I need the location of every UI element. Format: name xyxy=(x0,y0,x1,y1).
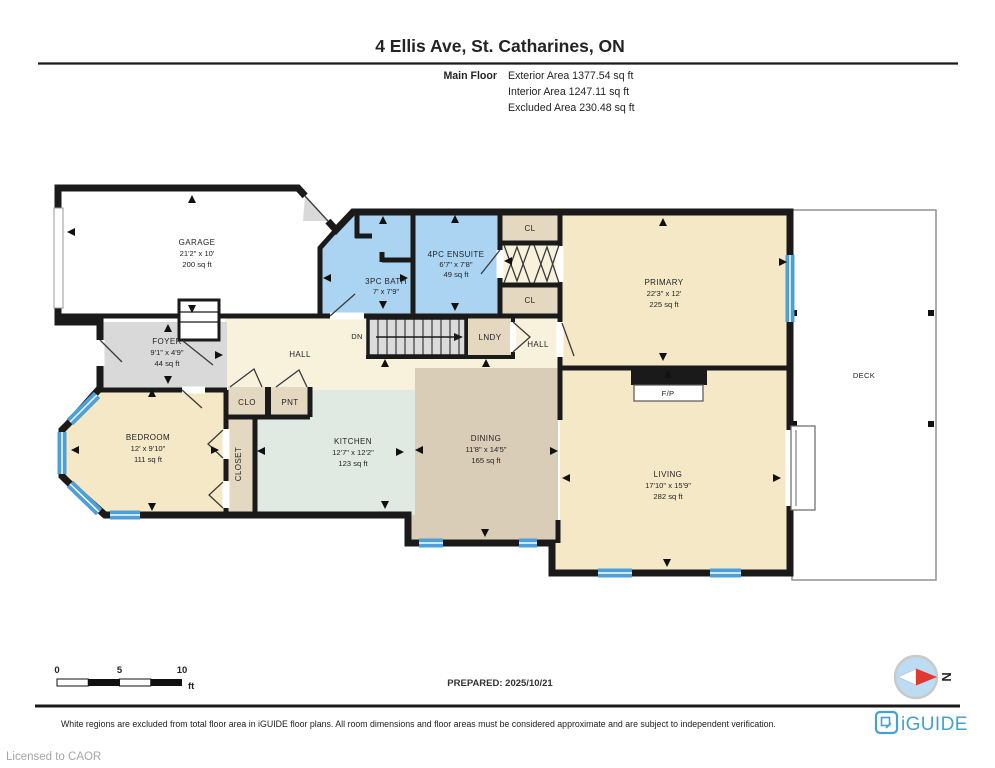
staircase xyxy=(368,318,466,356)
scale-0: 0 xyxy=(54,665,59,676)
iguide-logo-text: iGUIDE xyxy=(901,714,968,735)
scale-10: 10 xyxy=(177,665,188,676)
floorplan-page: 4 Ellis Ave, St. Catharines, ON Main Flo… xyxy=(0,0,995,768)
cl-passage xyxy=(500,243,560,285)
living-dims: 17'10" x 15'9" xyxy=(645,481,691,490)
kitchen-area: 123 sq ft xyxy=(338,459,368,468)
primary-area: 225 sq ft xyxy=(649,300,679,309)
dining-area: 165 sq ft xyxy=(471,456,501,465)
dining-label: DINING xyxy=(471,434,501,443)
primary-label: PRIMARY xyxy=(644,278,683,287)
deck: DECK xyxy=(791,210,936,580)
license-text: Licensed to CAOR xyxy=(6,751,101,763)
bedroom-area: 111 sq ft xyxy=(134,455,163,464)
floorplan-canvas: 4 Ellis Ave, St. Catharines, ON Main Flo… xyxy=(0,0,995,768)
iguide-logo-icon xyxy=(876,712,897,733)
kitchen-dims: 12'7" x 12'2" xyxy=(332,448,374,457)
foyer-label: FOYER xyxy=(152,337,182,346)
laundry-label: LNDY xyxy=(479,333,502,342)
exterior-area: Exterior Area 1377.54 sq ft xyxy=(508,70,633,82)
cl-top-label: CL xyxy=(524,224,535,233)
bath-dims: 7' x 7'9" xyxy=(373,287,400,296)
living-label: LIVING xyxy=(654,470,683,479)
scale-unit: ft xyxy=(188,681,195,692)
patio-door xyxy=(791,426,815,510)
hall-back-label: HALL xyxy=(527,340,549,349)
excluded-area: Excluded Area 230.48 sq ft xyxy=(508,102,635,114)
foyer-area: 44 sq ft xyxy=(155,359,181,368)
cl-bottom-label: CL xyxy=(524,296,535,305)
disclaimer-text: White regions are excluded from total fl… xyxy=(61,719,776,729)
stairs-dn-label: DN xyxy=(351,332,363,341)
ensuite-dims: 6'7" x 7'8" xyxy=(439,260,473,269)
garage-area: 200 sq ft xyxy=(182,260,212,269)
prepared-date: PREPARED: 2025/10/21 xyxy=(447,678,553,689)
garage-door xyxy=(54,208,63,308)
clo-label: CLO xyxy=(238,398,256,407)
compass-icon: N xyxy=(895,656,954,698)
scale-5: 5 xyxy=(117,665,123,676)
deck-label: DECK xyxy=(853,371,875,380)
living-area: 282 sq ft xyxy=(653,492,683,501)
primary-dims: 22'3" x 12' xyxy=(647,289,682,298)
hall-label: HALL xyxy=(289,350,311,359)
scale-bar: 0 5 10 ft xyxy=(54,665,195,692)
bedroom-label: BEDROOM xyxy=(126,433,170,442)
floor-label: Main Floor xyxy=(443,70,497,82)
compass-north-label: N xyxy=(939,672,954,681)
closet-label: CLOSET xyxy=(234,447,243,481)
ensuite-label: 4PC ENSUITE xyxy=(428,250,485,259)
kitchen-label: KITCHEN xyxy=(334,437,372,446)
fireplace-label: F/P xyxy=(662,389,675,398)
garage-label: GARAGE xyxy=(179,238,216,247)
iguide-logo: iGUIDE xyxy=(876,712,968,735)
page-title: 4 Ellis Ave, St. Catharines, ON xyxy=(375,36,625,56)
ensuite-area: 49 sq ft xyxy=(444,270,470,279)
bedroom-dims: 12' x 9'10" xyxy=(131,444,166,453)
bath-label: 3PC BATH xyxy=(365,277,407,286)
foyer-dims: 9'1" x 4'9" xyxy=(150,348,184,357)
interior-area: Interior Area 1247.11 sq ft xyxy=(508,86,629,98)
garage-dims: 21'2" x 10' xyxy=(180,249,215,258)
pantry-label: PNT xyxy=(281,398,298,407)
dining-dims: 11'8" x 14'5" xyxy=(465,445,506,454)
